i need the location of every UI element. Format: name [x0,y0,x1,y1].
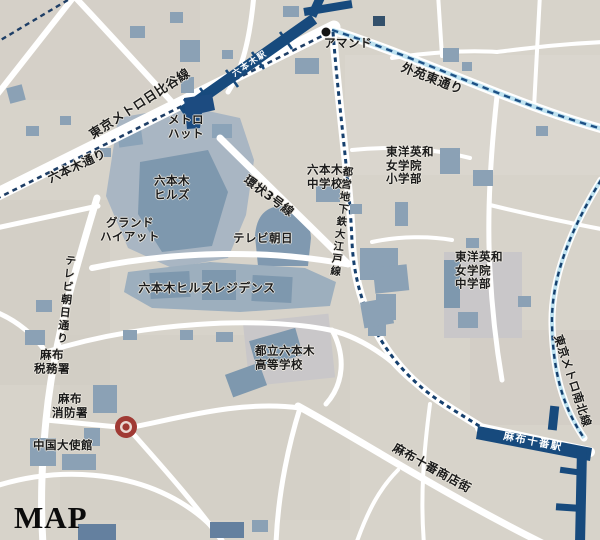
map-canvas: 東京メトロ日比谷線 六本木通り メトロ ハット 六本木 ヒルズ グランド ハイア… [0,0,600,540]
map-base [0,0,600,540]
almond-dot [322,28,331,37]
map-caption: MAP [14,500,88,536]
location-marker [115,416,137,438]
right-edge-subway-bar [575,448,587,540]
azabu-juban-station-bar [476,426,592,461]
